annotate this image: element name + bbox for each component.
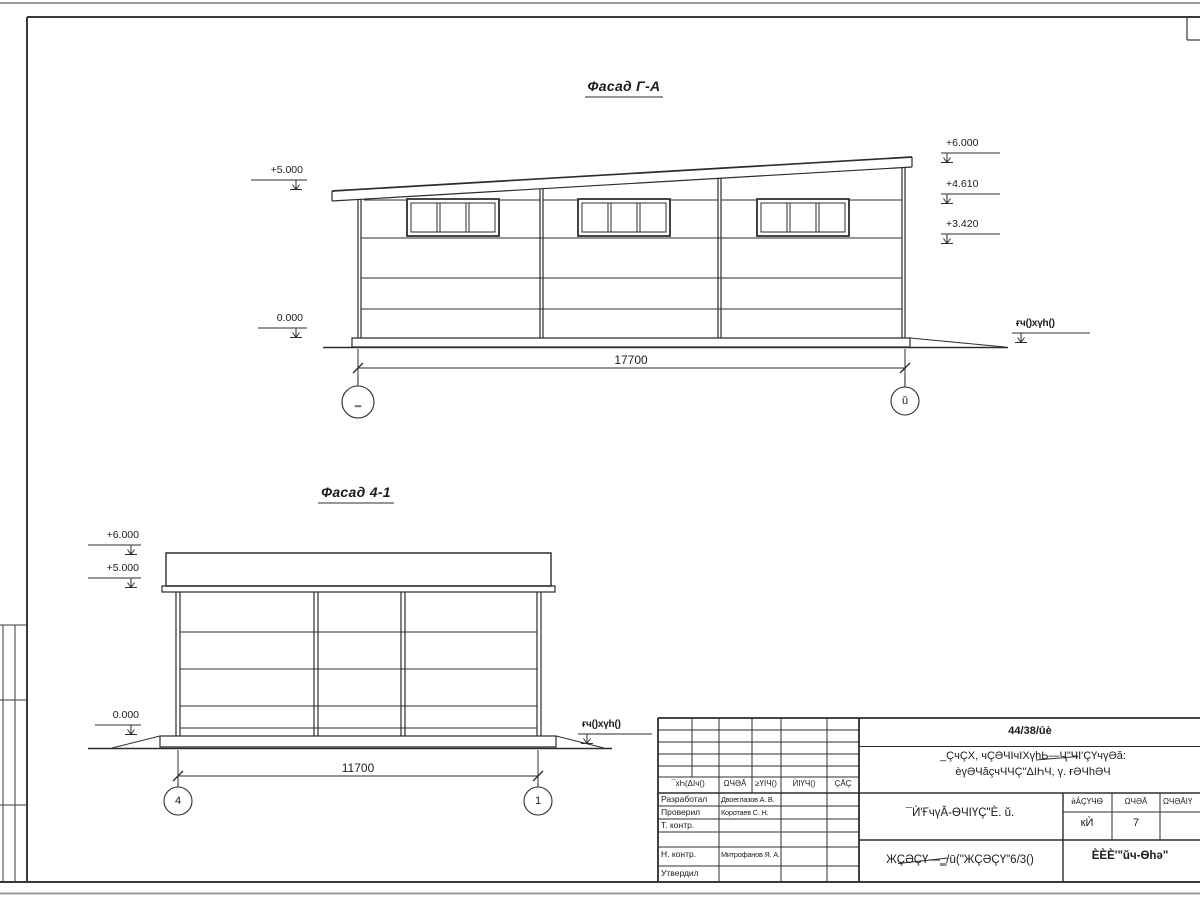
tb-col-list: ΩЧӘĂ	[724, 780, 747, 788]
axis-markers	[164, 783, 552, 815]
axis-bubble-1: 1	[523, 786, 553, 816]
facade-ga-title: Фасад Г-А	[588, 79, 661, 93]
tb-stadia-value: кЍ	[1081, 818, 1094, 829]
tb-col-ndoc: ≥ҮIЧ()	[755, 780, 777, 788]
tb-org-name: ÈÈÈ'"ŭч-Ѳhә"	[1092, 851, 1169, 863]
axis-bubble-right: ŭ	[890, 386, 920, 416]
drawing-sheet: Фасад Г-А +5.000 0.000 +6.000 +4.610 +3.…	[0, 0, 1200, 900]
tb-name-checked: Коротаев С. Н.	[721, 809, 768, 816]
tb-role-tcontrol: Т. контр.	[661, 821, 694, 830]
tb-list-header: ΩЧӘĂ	[1125, 798, 1148, 806]
elevation-label-plus342: +3.420	[946, 219, 978, 230]
drawing-linework	[0, 0, 1200, 900]
tb-col-data: ÇĂÇ	[835, 780, 852, 788]
tb-sheet-number: 7	[1133, 818, 1139, 829]
elevation-label-zero: 0.000	[237, 313, 303, 324]
tb-role-developed: Разработал	[661, 795, 707, 804]
dimension-value: 17700	[614, 354, 647, 366]
tb-name-ncontrol: Митрофанов Я. А.	[721, 851, 780, 858]
ground-level-label: ғч()хүh()	[582, 720, 621, 730]
tb-role-approved: Утвердил	[661, 869, 699, 878]
tb-role-ncontrol: Н. контр.	[661, 850, 696, 859]
elevation-marks	[88, 545, 652, 744]
tb-doc-code: ЖÇӘÇҮ—‗/ū("ЖÇӘÇҮ"6/3()	[886, 855, 1034, 867]
elevation-label-zero: 0.000	[76, 710, 139, 721]
elevation-label-plus5: +5.000	[237, 165, 303, 176]
tb-name-developed: Двоеглазов А. В.	[721, 796, 774, 803]
tb-doc-number: 44/38/ūè	[1008, 726, 1051, 737]
window	[407, 199, 849, 236]
dimension-value: 11700	[342, 762, 374, 774]
tb-project-line1: _ÇчÇХ, чÇӘЧIчIХүhЬ—Ҷ"ЧI'ÇҮчүӘă:	[940, 751, 1126, 762]
ground-level-label: ғч()хүh()	[1016, 319, 1055, 329]
axis-bubble-left: ‗	[343, 387, 373, 417]
tb-col-podp: ЍIҮЧ()	[792, 780, 815, 788]
elevation-label-plus5: +5.000	[76, 563, 139, 574]
tb-sheet-title: ¯Ѝ'ҒчүĂ-ѲЧIҮÇ"È. ŭ.	[906, 808, 1015, 820]
axis-markers	[342, 375, 919, 418]
elevation-label-plus6: +6.000	[76, 530, 139, 541]
tb-project-line2: èүӘЧăçчЧЧÇ"ΔIҺЧ, ү. ғӘЧhӘЧ	[955, 767, 1110, 778]
tb-stadia-header: ѝǺÇҮЧѲ	[1071, 798, 1103, 806]
axis-bubble-4: 4	[163, 786, 193, 816]
window-frames	[411, 203, 845, 232]
facade-41-title: Фасад 4-1	[321, 485, 391, 499]
tb-role-checked: Проверил	[661, 808, 700, 817]
elevation-label-plus461: +4.610	[946, 179, 978, 190]
tb-listov-header: ΩЧӘĂIҮ	[1163, 798, 1192, 806]
elevation-label-plus6: +6.000	[946, 138, 978, 149]
tb-col-izm: ¯хҺ(ΔIч()	[671, 780, 704, 788]
